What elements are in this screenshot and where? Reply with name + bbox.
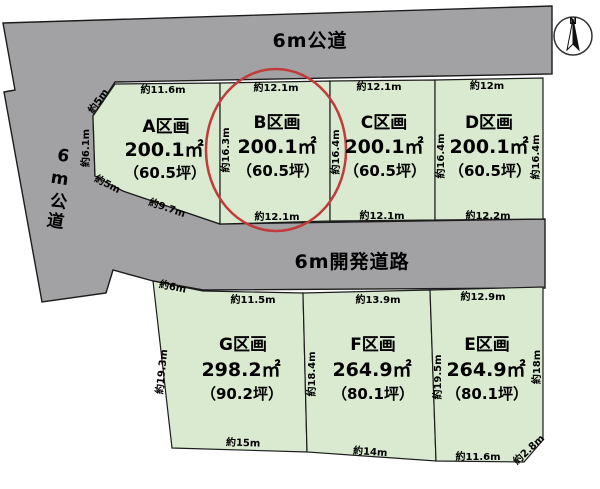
dim-a-top: 約11.6m — [140, 83, 185, 96]
plot-f-area: 264.9㎡ — [332, 358, 411, 381]
land-plot-diagram: 6m公道 6m開発道路 A区画 200.1㎡ （60.5坪） B区画 200.1… — [0, 0, 600, 489]
compass-north-label: N — [569, 17, 577, 27]
plot-a-name: A区画 — [142, 117, 189, 137]
plot-c-area: 200.1㎡ — [344, 135, 423, 158]
dim-c-d-boundary: 約16.4m — [434, 133, 447, 178]
dim-e-bottom: 約11.6m — [455, 450, 500, 463]
dim-d-right: 約16.4m — [529, 134, 542, 179]
dim-c-top: 約12.1m — [356, 80, 401, 93]
plot-b-name: B区画 — [254, 113, 301, 133]
plot-e-tsubo: （80.1坪） — [446, 385, 528, 403]
dim-g-f-boundary: 約18.4m — [305, 351, 318, 396]
middle-road-label: 6m開発道路 — [294, 250, 409, 273]
dim-e-top: 約12.9m — [460, 290, 505, 303]
site-plan-svg: 6m公道 6m開発道路 A区画 200.1㎡ （60.5坪） B区画 200.1… — [0, 0, 600, 489]
plot-f-tsubo: （80.1坪） — [332, 385, 414, 403]
plot-e-area: 264.9㎡ — [446, 358, 525, 381]
dim-g-top: 約11.5m — [230, 293, 275, 306]
dim-b-c-boundary: 約16.4m — [329, 129, 342, 174]
dim-d-top: 約12m — [470, 79, 504, 92]
plot-e-name: E区画 — [464, 335, 510, 355]
plot-a-area: 200.1㎡ — [124, 138, 203, 161]
dim-f-e-boundary: 約19.5m — [431, 354, 444, 399]
dim-b-bottom: 約12.1m — [254, 210, 299, 223]
dim-e-right: 約18m — [530, 350, 543, 384]
plot-b-area: 200.1㎡ — [237, 135, 316, 158]
plot-b-tsubo: （60.5坪） — [237, 162, 319, 180]
plot-c-name: C区画 — [361, 113, 407, 133]
plot-f-name: F区画 — [350, 335, 396, 355]
compass: N — [554, 17, 592, 55]
top-road-label: 6m公道 — [272, 29, 347, 52]
dim-b-left: 約16.3m — [219, 127, 232, 172]
dim-c-bottom: 約12.1m — [359, 209, 404, 222]
dim-d-bottom: 約12.2m — [465, 209, 510, 222]
dim-f-top: 約13.9m — [355, 293, 400, 306]
plot-g-name: G区画 — [219, 335, 267, 355]
dim-g-bottom: 約15m — [226, 435, 261, 449]
plot-d-name: D区画 — [465, 113, 513, 133]
plot-g-tsubo: （90.2坪） — [201, 385, 283, 403]
plot-c-tsubo: （60.5坪） — [344, 162, 426, 180]
plot-d-area: 200.1㎡ — [449, 135, 528, 158]
plot-g-area: 298.2㎡ — [201, 358, 280, 381]
dim-a-left: 約6.1m — [79, 129, 92, 167]
dim-b-top: 約12.1m — [253, 81, 298, 94]
plot-d-tsubo: （60.5坪） — [449, 162, 531, 180]
plot-a-tsubo: （60.5坪） — [124, 164, 206, 182]
